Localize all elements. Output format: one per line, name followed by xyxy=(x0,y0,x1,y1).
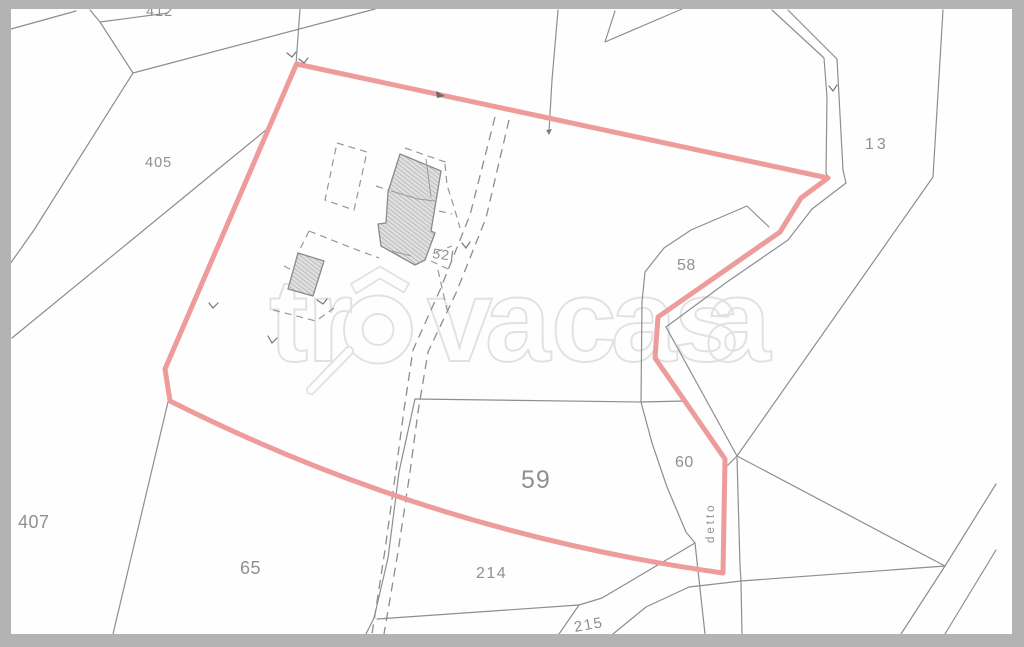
svg-text:52I: 52I xyxy=(432,245,456,264)
svg-text:407: 407 xyxy=(18,512,50,532)
svg-text:13: 13 xyxy=(865,136,889,153)
svg-text:59: 59 xyxy=(521,466,551,494)
svg-text:65: 65 xyxy=(240,558,261,578)
svg-text:detto: detto xyxy=(705,502,717,543)
svg-text:214: 214 xyxy=(476,565,507,582)
svg-text:58: 58 xyxy=(677,257,696,274)
svg-text:60: 60 xyxy=(675,454,694,471)
svg-text:405: 405 xyxy=(145,155,172,171)
